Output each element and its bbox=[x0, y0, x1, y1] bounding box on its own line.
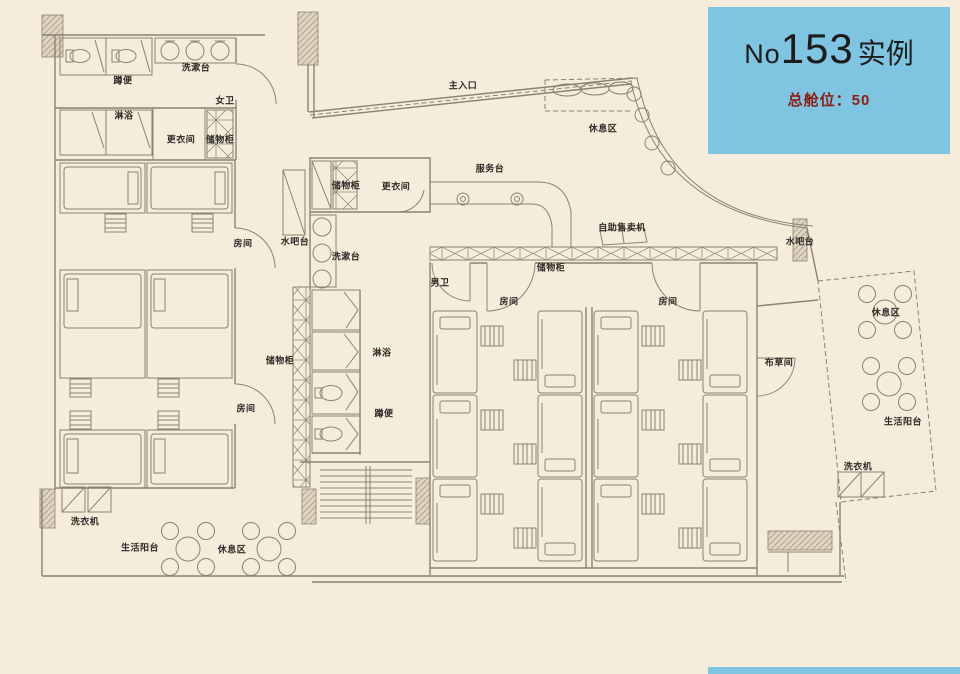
capsule-beds bbox=[433, 311, 747, 561]
card-number: 153 bbox=[781, 25, 854, 73]
card-suffix: 实例 bbox=[858, 32, 914, 72]
bottom-accent-strip bbox=[708, 667, 960, 674]
card-title: No 153 实例 bbox=[744, 25, 914, 73]
floorplan-page: 主入口洗漱台蹲便女卫淋浴更衣间储物柜房间房间储物柜水吧台储物柜更衣间洗漱台男卫淋… bbox=[0, 0, 960, 674]
card-capacity: 总舱位：50 bbox=[788, 89, 871, 110]
info-card: No 153 实例 总舱位：50 bbox=[708, 7, 950, 154]
card-number-prefix: No bbox=[744, 39, 781, 70]
